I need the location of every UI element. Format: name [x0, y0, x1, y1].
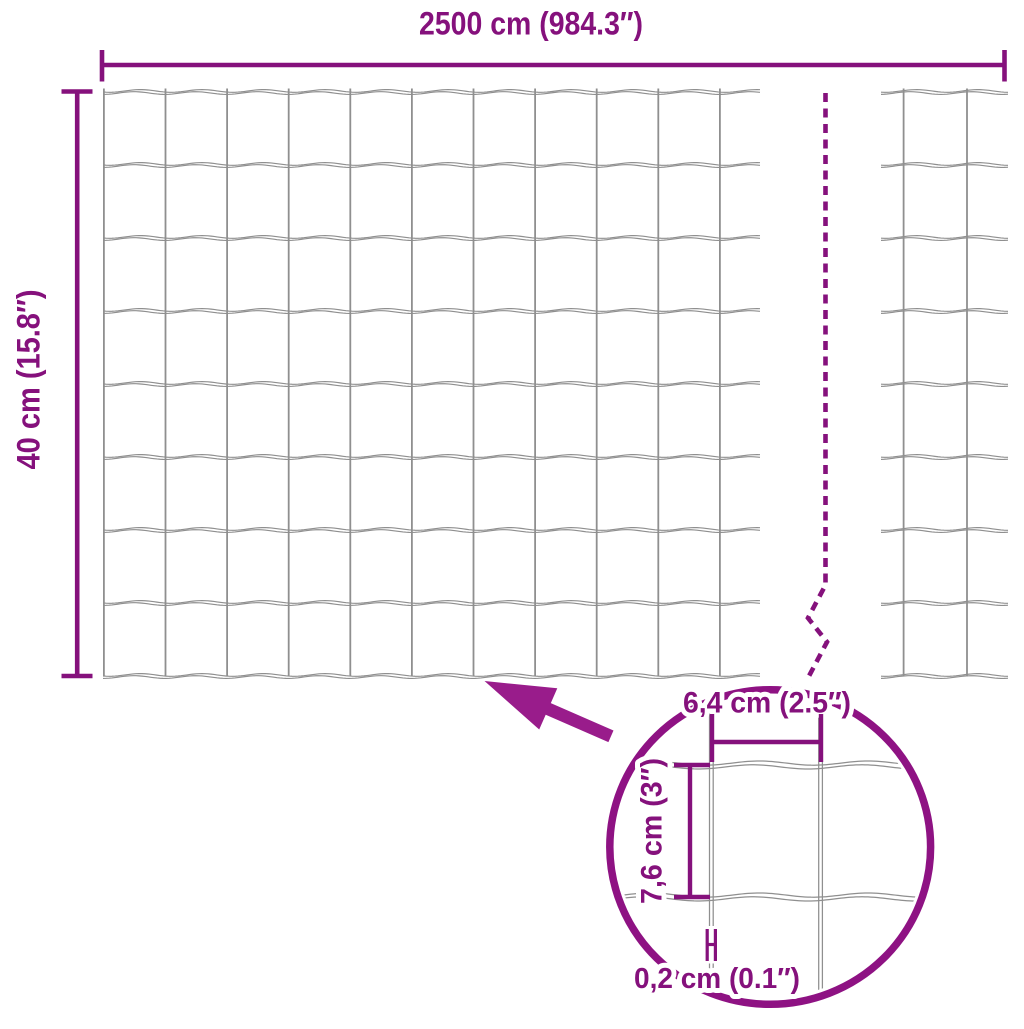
- svg-text:0,2 cm (0.1″): 0,2 cm (0.1″): [634, 963, 800, 995]
- svg-text:6,4 cm (2.5″): 6,4 cm (2.5″): [683, 687, 851, 720]
- svg-text:2500 cm (984.3″): 2500 cm (984.3″): [419, 6, 643, 42]
- svg-text:7,6 cm (3″): 7,6 cm (3″): [636, 758, 669, 904]
- svg-text:40 cm (15.8″): 40 cm (15.8″): [11, 290, 47, 470]
